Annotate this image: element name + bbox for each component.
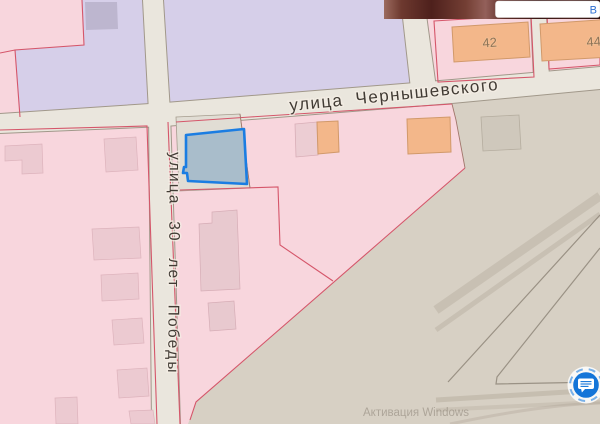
account-bar: В xyxy=(496,1,600,18)
map-canvas[interactable]: улица Чернышевского улица 30 лет Победы … xyxy=(0,0,600,424)
account-link[interactable]: В xyxy=(590,5,597,17)
building-label-44: 44 xyxy=(586,34,600,50)
map-viewport[interactable]: улица Чернышевского улица 30 лет Победы … xyxy=(0,0,600,424)
building-label-42: 42 xyxy=(482,35,497,51)
street-label-30-let-pobedy: улица 30 лет Победы xyxy=(164,152,183,375)
building-orange-small xyxy=(317,121,339,154)
windows-watermark: Активация Windows xyxy=(363,407,469,419)
building-orange-large xyxy=(407,117,451,154)
industrial-building xyxy=(481,115,521,151)
building-annex xyxy=(295,122,318,157)
selected-parcel[interactable] xyxy=(183,129,247,184)
building-footprint xyxy=(85,2,118,30)
